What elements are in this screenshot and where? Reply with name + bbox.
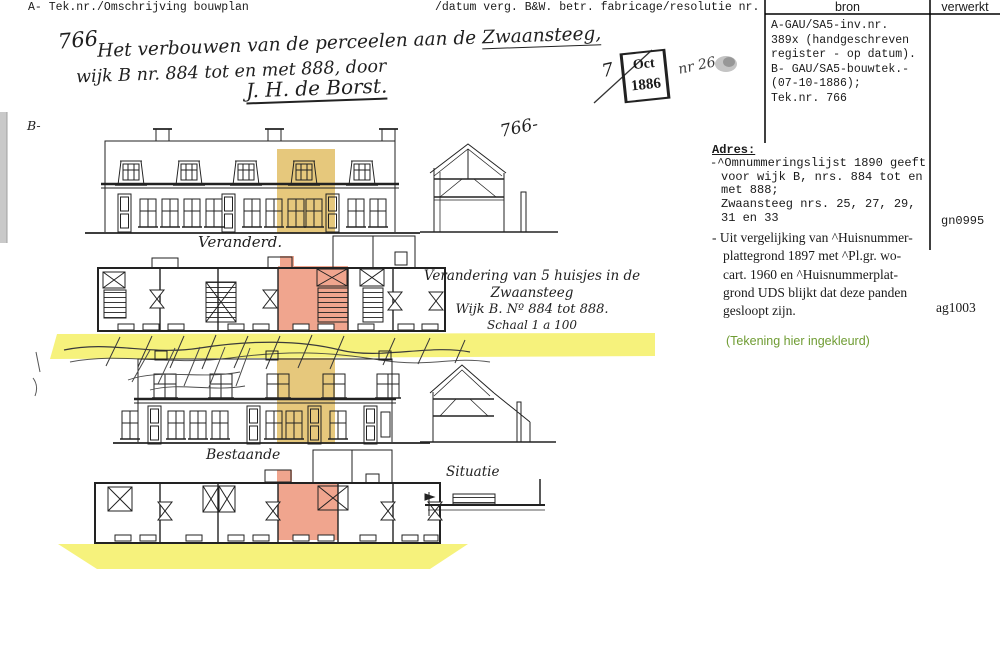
drawing-caption: Verandering van 5 huisjes in de Zwaanste… [420,268,644,333]
bron-line: register - op datum). [771,48,916,63]
cross-section-top-drawing [420,144,558,232]
adres-line: cart. 1960 en ^Huisnummerplat- [712,266,913,284]
yellow-highlight-band-bottom [58,544,468,569]
adres-heading: Adres: [712,143,755,157]
date-stamp: 7 Oct 1886 nr 26 [598,48,748,106]
bron-line: (07-10-1886); [771,77,916,92]
yellow-highlight-band-top [50,333,655,359]
stamp-year: 1886 [625,73,667,97]
bron-table-body: A-GAU/SA5-inv.nr. 389x (handgeschreven r… [771,19,916,107]
caption-line: Verandering van 5 huisjes in de Zwaanste… [420,268,644,302]
adres-line: Zwaansteeg nrs. 25, 27, 29, [710,198,926,212]
green-note: (Tekening hier ingekleurd) [726,334,870,348]
bron-line: A-GAU/SA5-inv.nr. [771,19,916,34]
caption-line: Schaal 1 a 100 [420,318,644,333]
handwritten-tek-nr: 766 [57,26,99,53]
label-veranderd: Veranderd. [198,233,282,251]
adres-line: gesloopt zijn. [712,302,913,320]
header-left-label: A- Tek.nr./Omschrijving bouwplan [28,1,249,14]
scan-edge-artifact [0,112,7,243]
caption-line: Wijk B. Nº 884 tot 888. [420,302,644,318]
adres-line: grond UDS blijkt dat deze panden [712,284,913,302]
stamp-box: Oct 1886 [620,49,671,104]
adres-line: met 888; [710,184,926,198]
label-situatie: Situatie [446,464,499,480]
verwerkt-column-header: verwerkt [930,0,1000,14]
adres-line: 31 en 33 [710,212,926,226]
adres-block-vergelijking: - Uit vergelijking van ^Huisnummer- plat… [712,229,913,320]
handwritten-signature: J. H. de Borst. [246,74,388,105]
bron-line: 389x (handgeschreven [771,34,916,49]
label-bestaande: Bestaande [206,447,280,463]
code-ag1003: ag1003 [936,300,976,316]
archive-document-page: A- Tek.nr./Omschrijving bouwplan /datum … [0,0,1000,649]
stamp-number: nr 26 [677,54,717,78]
section-letter-b: B- [27,118,41,133]
salmon-highlight-plan-bestaande [277,470,338,540]
cross-section-bottom-drawing [420,365,556,442]
adres-line: -^Omnummeringslijst 1890 geeft [710,157,926,171]
adres-block-omnummering: -^Omnummeringslijst 1890 geeft voor wijk… [710,157,926,226]
adres-line: plattegrond 1897 met ^Pl.gr. wo- [712,247,913,265]
header-right-label: /datum verg. B&W. betr. fabricage/resolu… [435,1,759,14]
bron-column-header: bron [765,0,930,14]
elevation-veranderd-drawing [85,129,420,233]
stamp-day: 7 [600,59,616,82]
code-gn0995: gn0995 [941,214,984,228]
street-name-underlined: Zwaansteeg, [482,23,602,49]
situatie-drawing [425,479,545,516]
bron-line: Tek.nr. 766 [771,92,916,107]
adres-line: - Uit vergelijking van ^Huisnummer- [712,229,913,247]
adres-line: voor wijk B, nrs. 884 tot en [710,171,926,185]
floorplan-bestaande-drawing [95,450,442,543]
elevation-bestaande-drawing [113,347,430,444]
bron-line: B- GAU/SA5-bouwtek.- [771,63,916,78]
